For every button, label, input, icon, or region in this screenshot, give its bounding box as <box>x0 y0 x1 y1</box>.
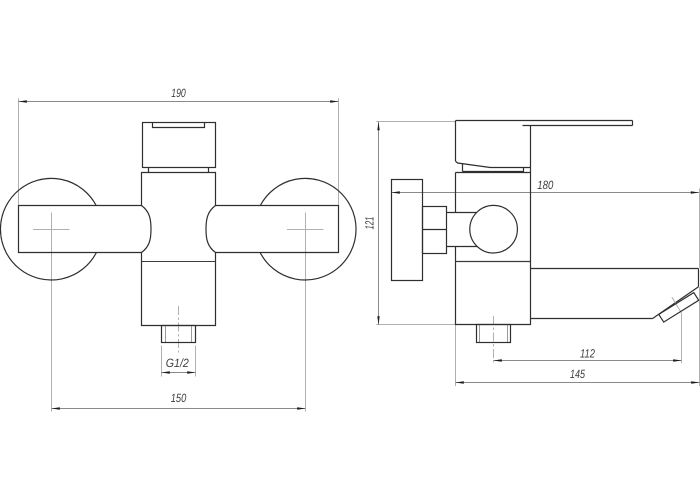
svg-text:190: 190 <box>171 86 186 100</box>
svg-text:G1/2: G1/2 <box>166 356 189 370</box>
svg-text:150: 150 <box>171 391 187 405</box>
svg-text:121: 121 <box>362 217 376 230</box>
svg-text:145: 145 <box>570 367 585 381</box>
svg-text:112: 112 <box>580 346 595 360</box>
svg-text:180: 180 <box>537 178 553 192</box>
